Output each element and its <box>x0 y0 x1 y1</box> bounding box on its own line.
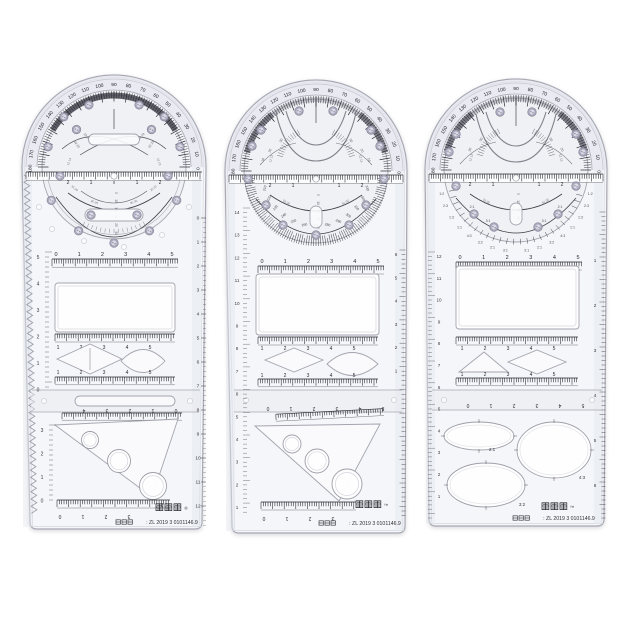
svg-text:2: 2 <box>307 259 310 265</box>
svg-text:1: 1 <box>261 373 264 379</box>
svg-text:3: 3 <box>105 407 108 413</box>
svg-text:™: ™ <box>384 503 389 508</box>
svg-text:1: 1 <box>538 182 541 188</box>
svg-text:1:1: 1:1 <box>570 225 575 229</box>
svg-text:2: 2 <box>67 180 70 186</box>
svg-text:6: 6 <box>236 392 239 397</box>
svg-text:0: 0 <box>596 170 602 173</box>
svg-text:1: 1 <box>284 259 287 265</box>
svg-text:1: 1 <box>57 345 60 351</box>
svg-text:5: 5 <box>170 252 173 258</box>
svg-text:2: 2 <box>236 482 239 487</box>
svg-text:0: 0 <box>266 405 269 411</box>
svg-text:5: 5 <box>516 193 520 195</box>
svg-text:8: 8 <box>236 346 239 351</box>
svg-text:5: 5 <box>236 414 239 419</box>
svg-text:5: 5 <box>37 255 40 261</box>
svg-text:4: 4 <box>147 252 150 258</box>
svg-text:2: 2 <box>128 407 131 413</box>
svg-text:2: 2 <box>312 405 315 411</box>
svg-text:: ZL 2019 3 0101146.9: : ZL 2019 3 0101146.9 <box>349 521 401 527</box>
svg-text:5: 5 <box>149 370 152 376</box>
svg-text:0: 0 <box>54 252 57 258</box>
svg-text:3: 3 <box>535 402 538 408</box>
svg-text:90: 90 <box>313 87 319 93</box>
svg-text:3: 3 <box>529 255 532 261</box>
svg-text:3: 3 <box>438 450 441 455</box>
svg-text:2:1: 2:1 <box>558 205 563 209</box>
svg-text:8: 8 <box>438 341 441 346</box>
svg-text:1: 1 <box>594 258 597 263</box>
svg-text:12: 12 <box>195 504 201 510</box>
svg-text:1: 1 <box>338 183 341 189</box>
svg-text:3: 3 <box>124 252 127 258</box>
svg-text:2:3: 2:3 <box>443 204 448 208</box>
svg-text:3: 3 <box>507 372 510 378</box>
svg-text:2: 2 <box>438 472 441 477</box>
svg-text:1: 1 <box>489 402 492 408</box>
svg-text:3: 3 <box>594 348 597 353</box>
svg-text:3:2: 3:2 <box>519 502 526 507</box>
svg-text:2: 2 <box>37 335 40 341</box>
svg-text:7: 7 <box>438 363 441 368</box>
svg-text:1: 1 <box>292 183 295 189</box>
svg-text:1:3: 1:3 <box>578 215 583 219</box>
svg-text:1: 1 <box>236 505 239 510</box>
svg-text:2: 2 <box>594 303 597 308</box>
svg-text:5: 5 <box>581 402 584 408</box>
svg-text:1:2: 1:2 <box>588 192 593 196</box>
svg-text:3:1: 3:1 <box>524 249 529 253</box>
svg-text:2: 2 <box>561 182 564 188</box>
svg-text:4: 4 <box>530 372 533 378</box>
svg-text:3: 3 <box>331 515 334 521</box>
svg-text:4: 4 <box>553 255 556 261</box>
svg-text:7: 7 <box>236 369 239 374</box>
svg-text:1: 1 <box>90 180 93 186</box>
svg-text:2:1: 2:1 <box>470 205 475 209</box>
svg-text:4: 4 <box>395 299 398 304</box>
svg-text:4:3: 4:3 <box>579 475 586 480</box>
svg-text:4: 4 <box>438 428 441 433</box>
svg-text:1: 1 <box>261 346 264 352</box>
svg-text:1: 1 <box>197 240 200 246</box>
svg-text:5: 5 <box>353 373 356 379</box>
svg-text:3: 3 <box>127 513 130 519</box>
svg-text:1: 1 <box>461 372 464 378</box>
svg-text:0: 0 <box>197 216 200 222</box>
svg-text:1: 1 <box>37 361 40 367</box>
svg-text:2: 2 <box>159 180 162 186</box>
svg-text:6: 6 <box>197 360 200 366</box>
svg-text:2: 2 <box>484 372 487 378</box>
svg-text:3:2: 3:2 <box>478 241 483 245</box>
svg-text:4:3: 4:3 <box>560 234 565 238</box>
svg-text:5: 5 <box>353 346 356 352</box>
svg-text:10: 10 <box>436 298 442 303</box>
svg-text:4: 4 <box>37 282 40 288</box>
svg-text:5: 5 <box>197 336 200 342</box>
svg-text:3: 3 <box>37 308 40 314</box>
svg-text:1: 1 <box>492 182 495 188</box>
svg-text:4: 4 <box>82 407 85 413</box>
svg-text:25: 25 <box>114 223 118 227</box>
svg-text:4: 4 <box>330 373 333 379</box>
svg-text:2:1: 2:1 <box>490 246 495 250</box>
svg-text:4: 4 <box>558 402 561 408</box>
svg-text:4: 4 <box>353 259 356 265</box>
svg-text:4:3: 4:3 <box>467 234 472 238</box>
svg-text:11: 11 <box>235 278 240 283</box>
svg-text:0: 0 <box>41 499 44 505</box>
svg-text:2: 2 <box>41 452 44 458</box>
svg-text:10: 10 <box>316 201 320 205</box>
svg-text:3: 3 <box>307 346 310 352</box>
svg-text:5: 5 <box>594 438 597 443</box>
svg-text:90: 90 <box>111 82 117 88</box>
svg-text:13: 13 <box>234 233 240 238</box>
svg-text:2: 2 <box>484 346 487 352</box>
svg-text:1: 1 <box>78 252 81 258</box>
svg-text:0: 0 <box>174 407 177 413</box>
svg-text:14: 14 <box>234 210 240 215</box>
svg-text:3: 3 <box>307 373 310 379</box>
svg-text:1: 1 <box>136 180 139 186</box>
svg-text:3:1: 3:1 <box>503 249 508 253</box>
svg-text:0: 0 <box>37 388 40 394</box>
svg-text:1: 1 <box>57 370 60 376</box>
svg-text:0: 0 <box>260 259 263 265</box>
svg-text:11: 11 <box>196 480 201 486</box>
svg-text:5: 5 <box>553 372 556 378</box>
svg-text:1: 1 <box>151 407 154 413</box>
svg-text:12: 12 <box>436 254 442 259</box>
svg-text:0: 0 <box>458 255 461 261</box>
svg-text:3:2: 3:2 <box>549 241 554 245</box>
svg-text:2: 2 <box>104 513 107 519</box>
svg-text:3: 3 <box>197 288 200 294</box>
svg-text:9: 9 <box>438 319 441 324</box>
svg-text:3: 3 <box>103 370 106 376</box>
svg-text:2: 2 <box>506 255 509 261</box>
svg-text:5: 5 <box>114 192 118 194</box>
svg-text:2: 2 <box>80 370 83 376</box>
svg-text:1: 1 <box>285 515 288 521</box>
svg-text:30: 30 <box>114 231 118 235</box>
svg-text:2:1: 2:1 <box>537 246 542 250</box>
svg-text:6: 6 <box>438 385 441 390</box>
svg-text:1:2: 1:2 <box>439 192 444 196</box>
svg-text:1: 1 <box>461 346 464 352</box>
svg-text:0: 0 <box>466 402 469 408</box>
svg-text:2: 2 <box>197 264 200 270</box>
svg-text:6: 6 <box>395 252 398 257</box>
svg-text:4: 4 <box>330 346 333 352</box>
svg-text:2: 2 <box>361 183 364 189</box>
svg-text:8: 8 <box>197 408 200 414</box>
svg-text:4: 4 <box>126 345 129 351</box>
svg-text:5: 5 <box>376 259 379 265</box>
svg-text:3: 3 <box>335 405 338 411</box>
svg-text:1:3: 1:3 <box>449 215 454 219</box>
svg-text:90: 90 <box>513 86 519 92</box>
svg-text:3:1: 3:1 <box>486 219 491 223</box>
svg-text:0: 0 <box>195 167 201 170</box>
svg-text:180: 180 <box>28 164 34 172</box>
svg-text:5: 5 <box>553 346 556 352</box>
svg-text:2:3: 2:3 <box>584 204 589 208</box>
svg-text:1: 1 <box>482 255 485 261</box>
svg-text:2: 2 <box>284 373 287 379</box>
svg-text:1: 1 <box>289 405 292 411</box>
svg-text:5: 5 <box>316 194 320 196</box>
svg-text:2: 2 <box>269 183 272 189</box>
svg-text:9: 9 <box>236 324 239 329</box>
svg-text:2: 2 <box>308 515 311 521</box>
svg-text:10: 10 <box>114 199 118 203</box>
svg-text:5: 5 <box>438 407 441 412</box>
svg-text:4: 4 <box>197 312 200 318</box>
svg-text:0: 0 <box>262 515 265 521</box>
svg-text:2: 2 <box>512 402 515 408</box>
svg-text:1: 1 <box>41 475 44 481</box>
svg-text:0: 0 <box>58 513 61 519</box>
svg-text:1:1: 1:1 <box>457 225 462 229</box>
svg-text:10: 10 <box>195 456 201 462</box>
svg-text:3: 3 <box>236 460 239 465</box>
svg-text:5: 5 <box>381 405 384 411</box>
svg-text:2: 2 <box>469 182 472 188</box>
svg-text:5: 5 <box>576 255 579 261</box>
svg-text:1: 1 <box>395 369 398 374</box>
svg-text:3:1: 3:1 <box>542 219 547 223</box>
svg-text:: ZL 2019 3 0101146.9: : ZL 2019 3 0101146.9 <box>146 520 198 526</box>
svg-text:4: 4 <box>126 370 129 376</box>
svg-text:5: 5 <box>395 275 398 280</box>
svg-text:12: 12 <box>234 255 240 260</box>
svg-text:1: 1 <box>438 494 441 499</box>
svg-text:2:1: 2:1 <box>489 447 496 452</box>
svg-text:4: 4 <box>236 437 239 442</box>
svg-text:7: 7 <box>197 384 200 390</box>
svg-text:6: 6 <box>594 483 597 488</box>
svg-text:2: 2 <box>395 345 398 350</box>
svg-text:4: 4 <box>594 393 597 398</box>
svg-text:11: 11 <box>437 276 442 281</box>
svg-text:: ZL 2019 3 0101146.9: : ZL 2019 3 0101146.9 <box>543 516 595 522</box>
svg-text:0: 0 <box>396 171 402 174</box>
svg-text:3: 3 <box>41 428 44 434</box>
svg-text:3: 3 <box>395 322 398 327</box>
svg-text:1: 1 <box>81 513 84 519</box>
svg-text:™: ™ <box>570 505 575 510</box>
svg-text:3: 3 <box>330 259 333 265</box>
svg-text:3: 3 <box>507 346 510 352</box>
svg-text:10: 10 <box>234 301 240 306</box>
svg-text:4: 4 <box>530 346 533 352</box>
svg-text:9: 9 <box>197 432 200 438</box>
svg-text:2: 2 <box>101 252 104 258</box>
